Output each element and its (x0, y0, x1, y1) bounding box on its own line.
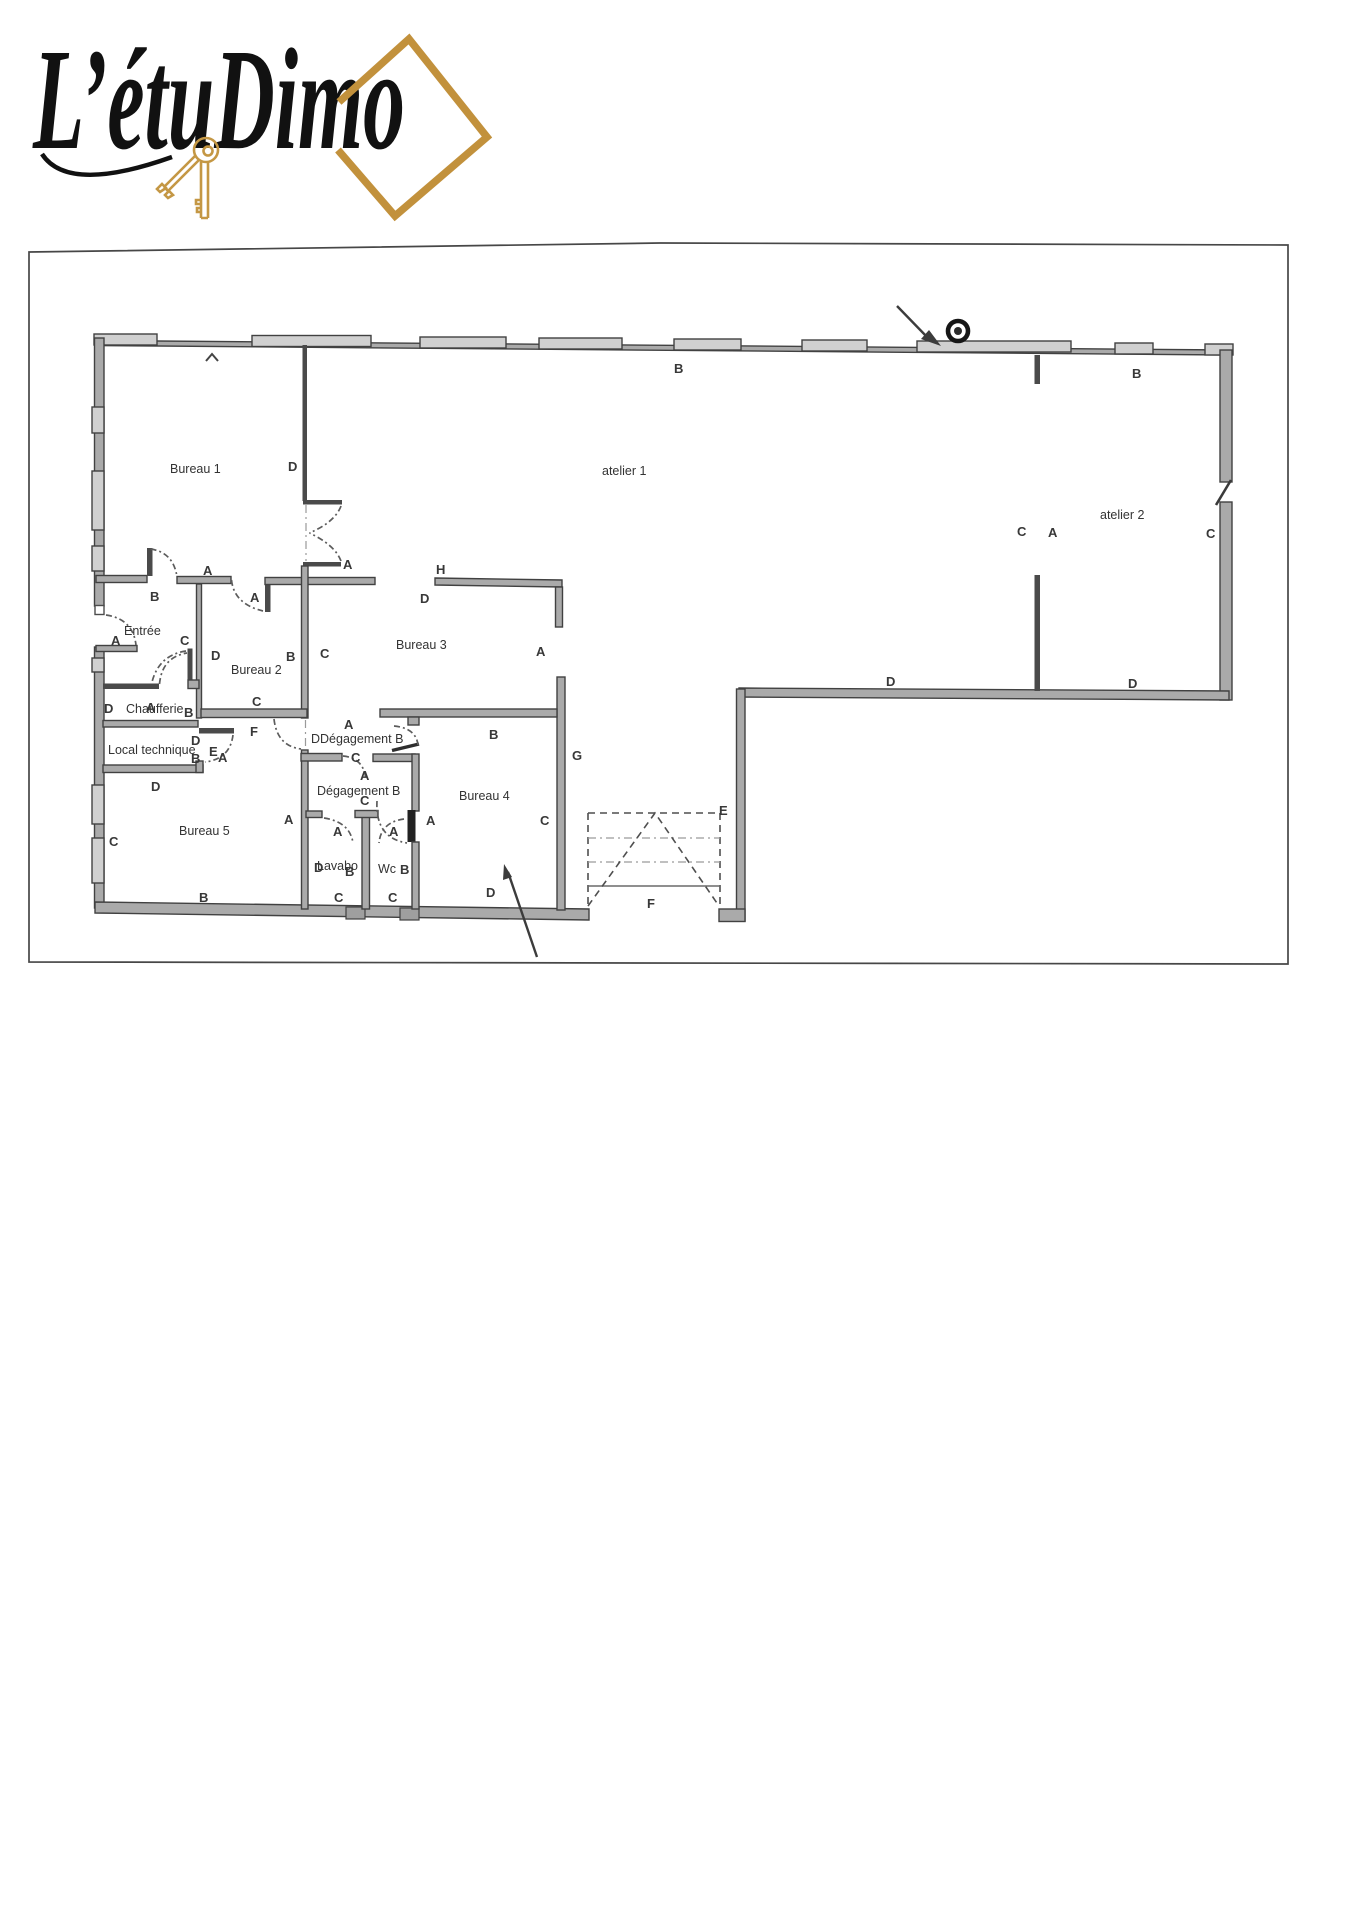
svg-text:D: D (151, 779, 160, 794)
svg-text:Wc: Wc (378, 862, 396, 876)
svg-text:A: A (203, 563, 213, 578)
svg-text:A: A (1048, 525, 1058, 540)
svg-text:A: A (360, 768, 370, 783)
svg-text:C: C (351, 750, 361, 765)
svg-text:C: C (388, 890, 398, 905)
svg-text:A: A (389, 824, 399, 839)
svg-text:B: B (345, 864, 354, 879)
svg-text:G: G (572, 748, 582, 763)
svg-text:D: D (1128, 676, 1137, 691)
svg-text:C: C (252, 694, 262, 709)
svg-text:DDégagement B: DDégagement B (311, 732, 403, 746)
svg-text:B: B (184, 705, 193, 720)
svg-text:D: D (486, 885, 495, 900)
svg-text:E: E (719, 803, 728, 818)
svg-text:E: E (209, 744, 218, 759)
svg-text:Bureau 4: Bureau 4 (459, 789, 510, 803)
svg-text:Bureau 5: Bureau 5 (179, 824, 230, 838)
svg-text:B: B (150, 589, 159, 604)
svg-text:A: A (343, 557, 353, 572)
svg-text:B: B (1132, 366, 1141, 381)
svg-text:C: C (320, 646, 330, 661)
svg-text:D: D (288, 459, 297, 474)
svg-text:B: B (286, 649, 295, 664)
svg-text:D: D (420, 591, 429, 606)
svg-text:C: C (1206, 526, 1216, 541)
svg-text:C: C (1017, 524, 1027, 539)
svg-text:A: A (426, 813, 436, 828)
svg-text:Dégagement B: Dégagement B (317, 784, 400, 798)
svg-text:Bureau 1: Bureau 1 (170, 462, 221, 476)
svg-text:atelier 2: atelier 2 (1100, 508, 1145, 522)
svg-text:A: A (146, 700, 156, 715)
svg-text:A: A (284, 812, 294, 827)
svg-text:A: A (111, 633, 121, 648)
svg-text:Local technique: Local technique (108, 743, 196, 757)
svg-text:B: B (191, 751, 200, 766)
svg-text:B: B (199, 890, 208, 905)
svg-text:C: C (180, 633, 190, 648)
svg-text:Bureau 3: Bureau 3 (396, 638, 447, 652)
svg-text:Bureau 2: Bureau 2 (231, 663, 282, 677)
svg-text:F: F (647, 896, 655, 911)
svg-text:D: D (314, 860, 323, 875)
svg-text:C: C (334, 890, 344, 905)
svg-text:Entrée: Entrée (124, 624, 161, 638)
svg-text:B: B (674, 361, 683, 376)
svg-text:D: D (211, 648, 220, 663)
svg-text:H: H (436, 562, 445, 577)
svg-text:C: C (540, 813, 550, 828)
svg-text:B: B (400, 862, 409, 877)
svg-text:A: A (536, 644, 546, 659)
svg-text:atelier 1: atelier 1 (602, 464, 647, 478)
svg-text:B: B (489, 727, 498, 742)
svg-text:A: A (333, 824, 343, 839)
svg-text:L’étuDimo: L’étuDimo (32, 20, 405, 180)
svg-text:A: A (344, 717, 354, 732)
svg-text:F: F (250, 724, 258, 739)
svg-text:C: C (109, 834, 119, 849)
svg-text:D: D (191, 733, 200, 748)
svg-text:C: C (360, 793, 370, 808)
svg-text:A: A (218, 750, 228, 765)
svg-text:D: D (104, 701, 113, 716)
svg-text:D: D (886, 674, 895, 689)
svg-text:A: A (250, 590, 260, 605)
